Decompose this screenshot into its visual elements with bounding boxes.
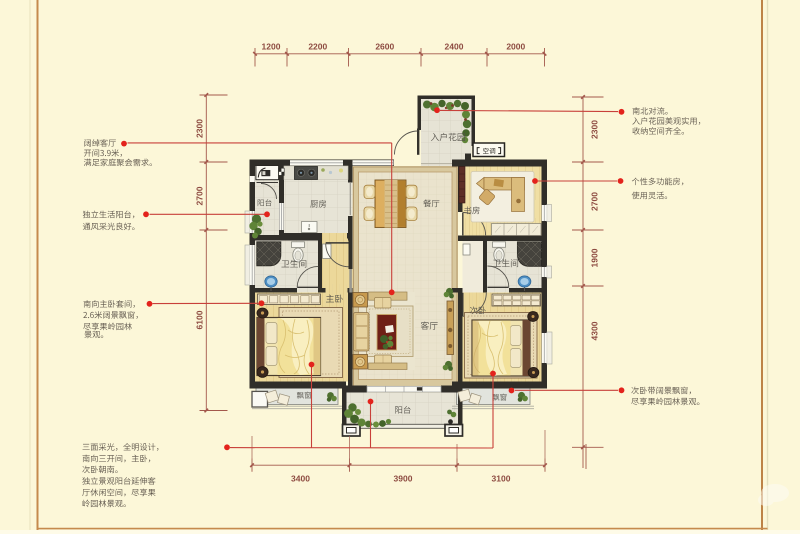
- svg-text:2300: 2300: [195, 119, 205, 138]
- svg-text:2400: 2400: [445, 42, 464, 52]
- svg-text:2700: 2700: [195, 186, 205, 205]
- svg-text:3400: 3400: [291, 474, 310, 484]
- svg-text:2600: 2600: [375, 42, 394, 52]
- svg-text:3900: 3900: [394, 474, 413, 484]
- svg-text:4300: 4300: [590, 321, 600, 340]
- svg-text:2000: 2000: [506, 42, 525, 52]
- svg-text:1900: 1900: [590, 248, 600, 267]
- svg-text:1200: 1200: [262, 42, 281, 52]
- svg-text:2300: 2300: [590, 120, 600, 139]
- svg-text:2200: 2200: [308, 42, 327, 52]
- svg-text:3100: 3100: [492, 474, 511, 484]
- svg-text:6100: 6100: [195, 310, 205, 329]
- svg-text:2700: 2700: [590, 192, 600, 211]
